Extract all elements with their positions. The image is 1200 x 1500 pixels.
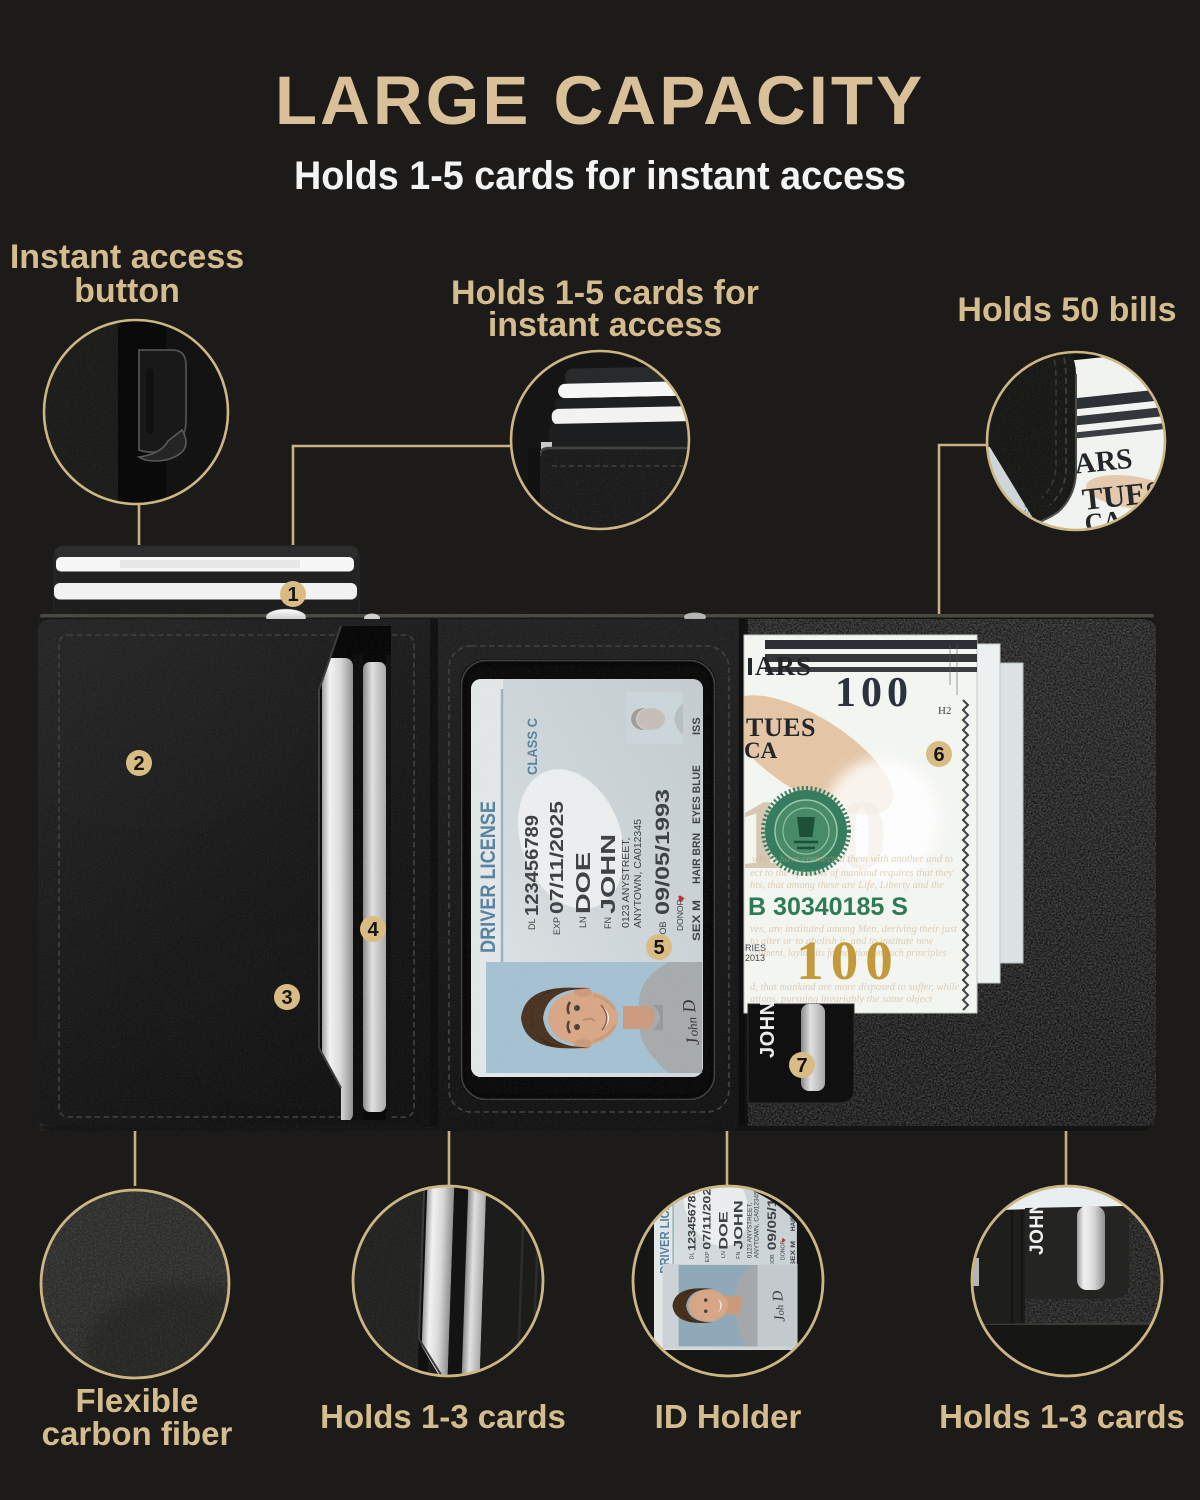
svg-text:4: 4 (367, 919, 379, 941)
svg-text:Holds 1-3 cards: Holds 1-3 cards (939, 1398, 1185, 1435)
svg-text:Holds 1-5 cards for instant ac: Holds 1-5 cards for instant access (294, 154, 906, 198)
svg-text:which have connected them with: which have connected them with another a… (752, 854, 953, 865)
svg-text:LARGE CAPACITY: LARGE CAPACITY (275, 62, 925, 139)
svg-text:instant access: instant access (488, 306, 722, 344)
svg-text:2: 2 (133, 753, 144, 775)
svg-text:H2: H2 (938, 705, 951, 717)
svg-text:100: 100 (796, 930, 900, 991)
svg-text:hts, that among these are Life: hts, that among these are Life, Liberty … (750, 880, 944, 891)
svg-text:2013: 2013 (745, 953, 765, 963)
svg-text:ARS: ARS (755, 651, 812, 681)
svg-text:100: 100 (835, 670, 913, 716)
svg-text:CA: CA (744, 738, 778, 763)
svg-text:Holds 1-3 cards: Holds 1-3 cards (320, 1398, 566, 1435)
svg-text:B 30340185 S: B 30340185 S (748, 893, 908, 921)
svg-text:button: button (74, 272, 180, 310)
svg-text:JOHN: JOHN (1027, 1200, 1048, 1255)
svg-text:Flexible: Flexible (76, 1382, 199, 1419)
svg-text:RIES: RIES (745, 943, 766, 953)
svg-text:Instant access: Instant access (10, 238, 244, 276)
svg-text:JOHN: JOHN (757, 1000, 779, 1058)
svg-text:Holds 50 bills: Holds 50 bills (957, 291, 1176, 329)
svg-text:3: 3 (281, 987, 292, 1009)
svg-text:5: 5 (653, 937, 664, 959)
svg-text:7: 7 (796, 1055, 807, 1077)
svg-text:ect to the opinions of mankind: ect to the opinions of mankind requires … (750, 868, 953, 879)
svg-text:6: 6 (933, 744, 944, 766)
svg-text:carbon fiber: carbon fiber (42, 1415, 233, 1452)
svg-text:1: 1 (287, 584, 298, 606)
svg-text:ID Holder: ID Holder (655, 1398, 802, 1435)
svg-text:ARS: ARS (1073, 443, 1134, 481)
